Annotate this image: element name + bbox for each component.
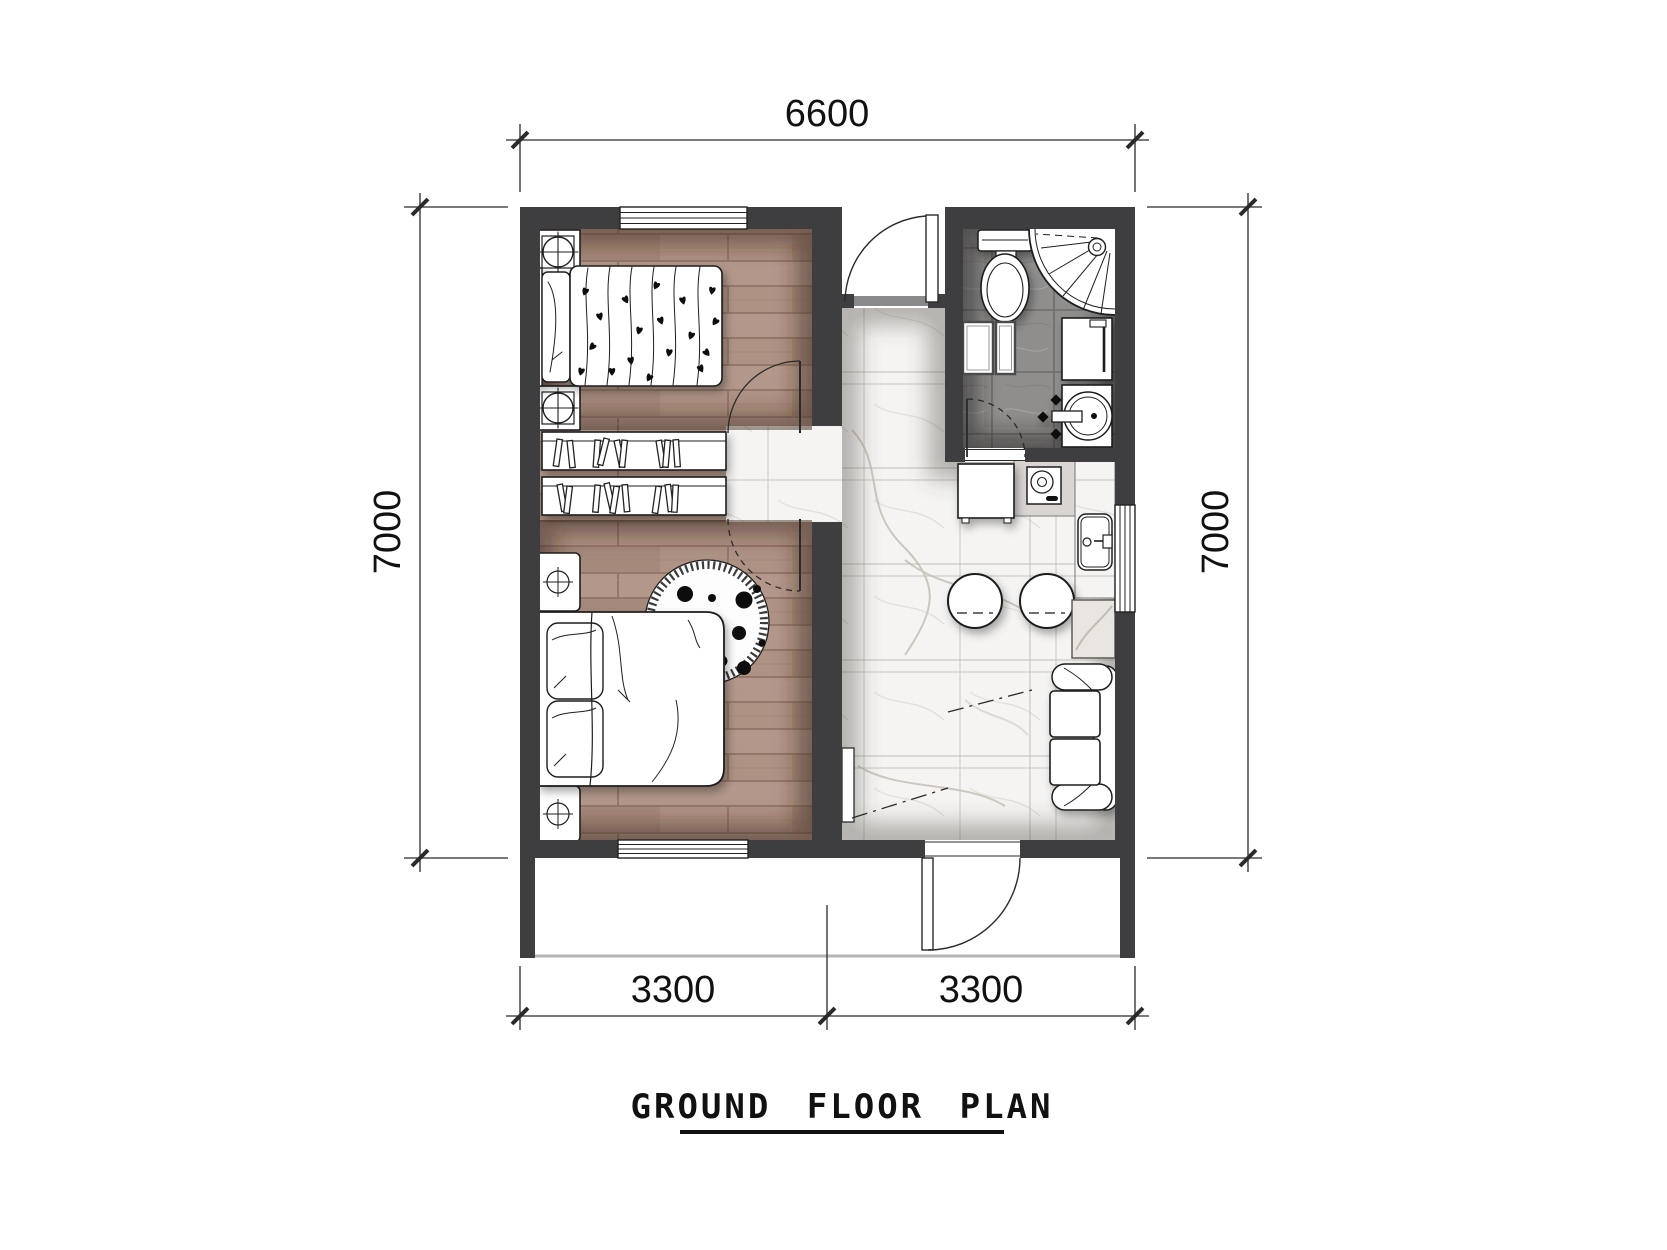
side-table <box>1072 600 1115 658</box>
double-bed <box>538 612 724 786</box>
wall-bathroom-bottom <box>1025 448 1115 462</box>
dim-right-label: 7000 <box>1195 490 1237 575</box>
floor-plan-page: 6600 7000 7000 330 <box>0 0 1667 1250</box>
window <box>1115 505 1135 612</box>
vestibule-floor <box>726 426 842 522</box>
bar-stool <box>1020 574 1074 628</box>
dim-bottom-right-label: 3300 <box>939 969 1024 1011</box>
nightstand <box>536 786 580 842</box>
wall-bathroom-bottom <box>945 448 965 462</box>
kitchen-cabinet <box>958 464 1014 523</box>
toilet <box>978 230 1032 322</box>
wall-alcove-stub <box>842 294 854 308</box>
hall-mirror-cabinet <box>842 748 854 822</box>
dim-left-label: 7000 <box>367 490 409 575</box>
dimension-right: 7000 <box>1147 193 1262 872</box>
bookshelf <box>542 477 726 515</box>
wall-bathroom-left <box>945 229 963 448</box>
bookshelf <box>542 432 726 470</box>
dimension-top: 6600 <box>506 93 1149 192</box>
drawing-title: GROUND FLOOR PLAN <box>631 1087 1054 1134</box>
washing-machine <box>1062 318 1112 380</box>
wall-bottom <box>1020 840 1135 858</box>
window <box>620 207 747 229</box>
window <box>618 840 748 858</box>
floor-plan-canvas: 6600 7000 7000 330 <box>0 0 1667 1250</box>
wall-left <box>520 207 540 858</box>
wall-bottom <box>748 840 925 858</box>
wall-porch-left <box>520 858 535 958</box>
single-bed <box>534 266 722 386</box>
storage-cabinets <box>963 322 1015 374</box>
nightstand <box>536 553 580 611</box>
dimension-left: 7000 <box>367 193 508 872</box>
title-underline <box>680 1130 1004 1134</box>
dim-top-label: 6600 <box>785 93 870 135</box>
kitchen-sink <box>1078 514 1112 570</box>
nightstand-lamp <box>536 386 580 430</box>
bar-stool <box>948 574 1002 628</box>
wall-central-upper <box>812 207 842 426</box>
plan-title: GROUND FLOOR PLAN <box>631 1087 1054 1127</box>
shower-drain <box>1089 239 1106 256</box>
wall-top-right <box>945 207 1135 229</box>
dim-bottom-left-label: 3300 <box>631 969 716 1011</box>
wall-central-lower <box>812 522 842 840</box>
hall-entry-door <box>845 215 938 306</box>
sofa <box>1050 664 1117 810</box>
wall-bottom <box>520 840 618 858</box>
wall-porch-right <box>1120 858 1135 958</box>
stove <box>1027 467 1061 504</box>
